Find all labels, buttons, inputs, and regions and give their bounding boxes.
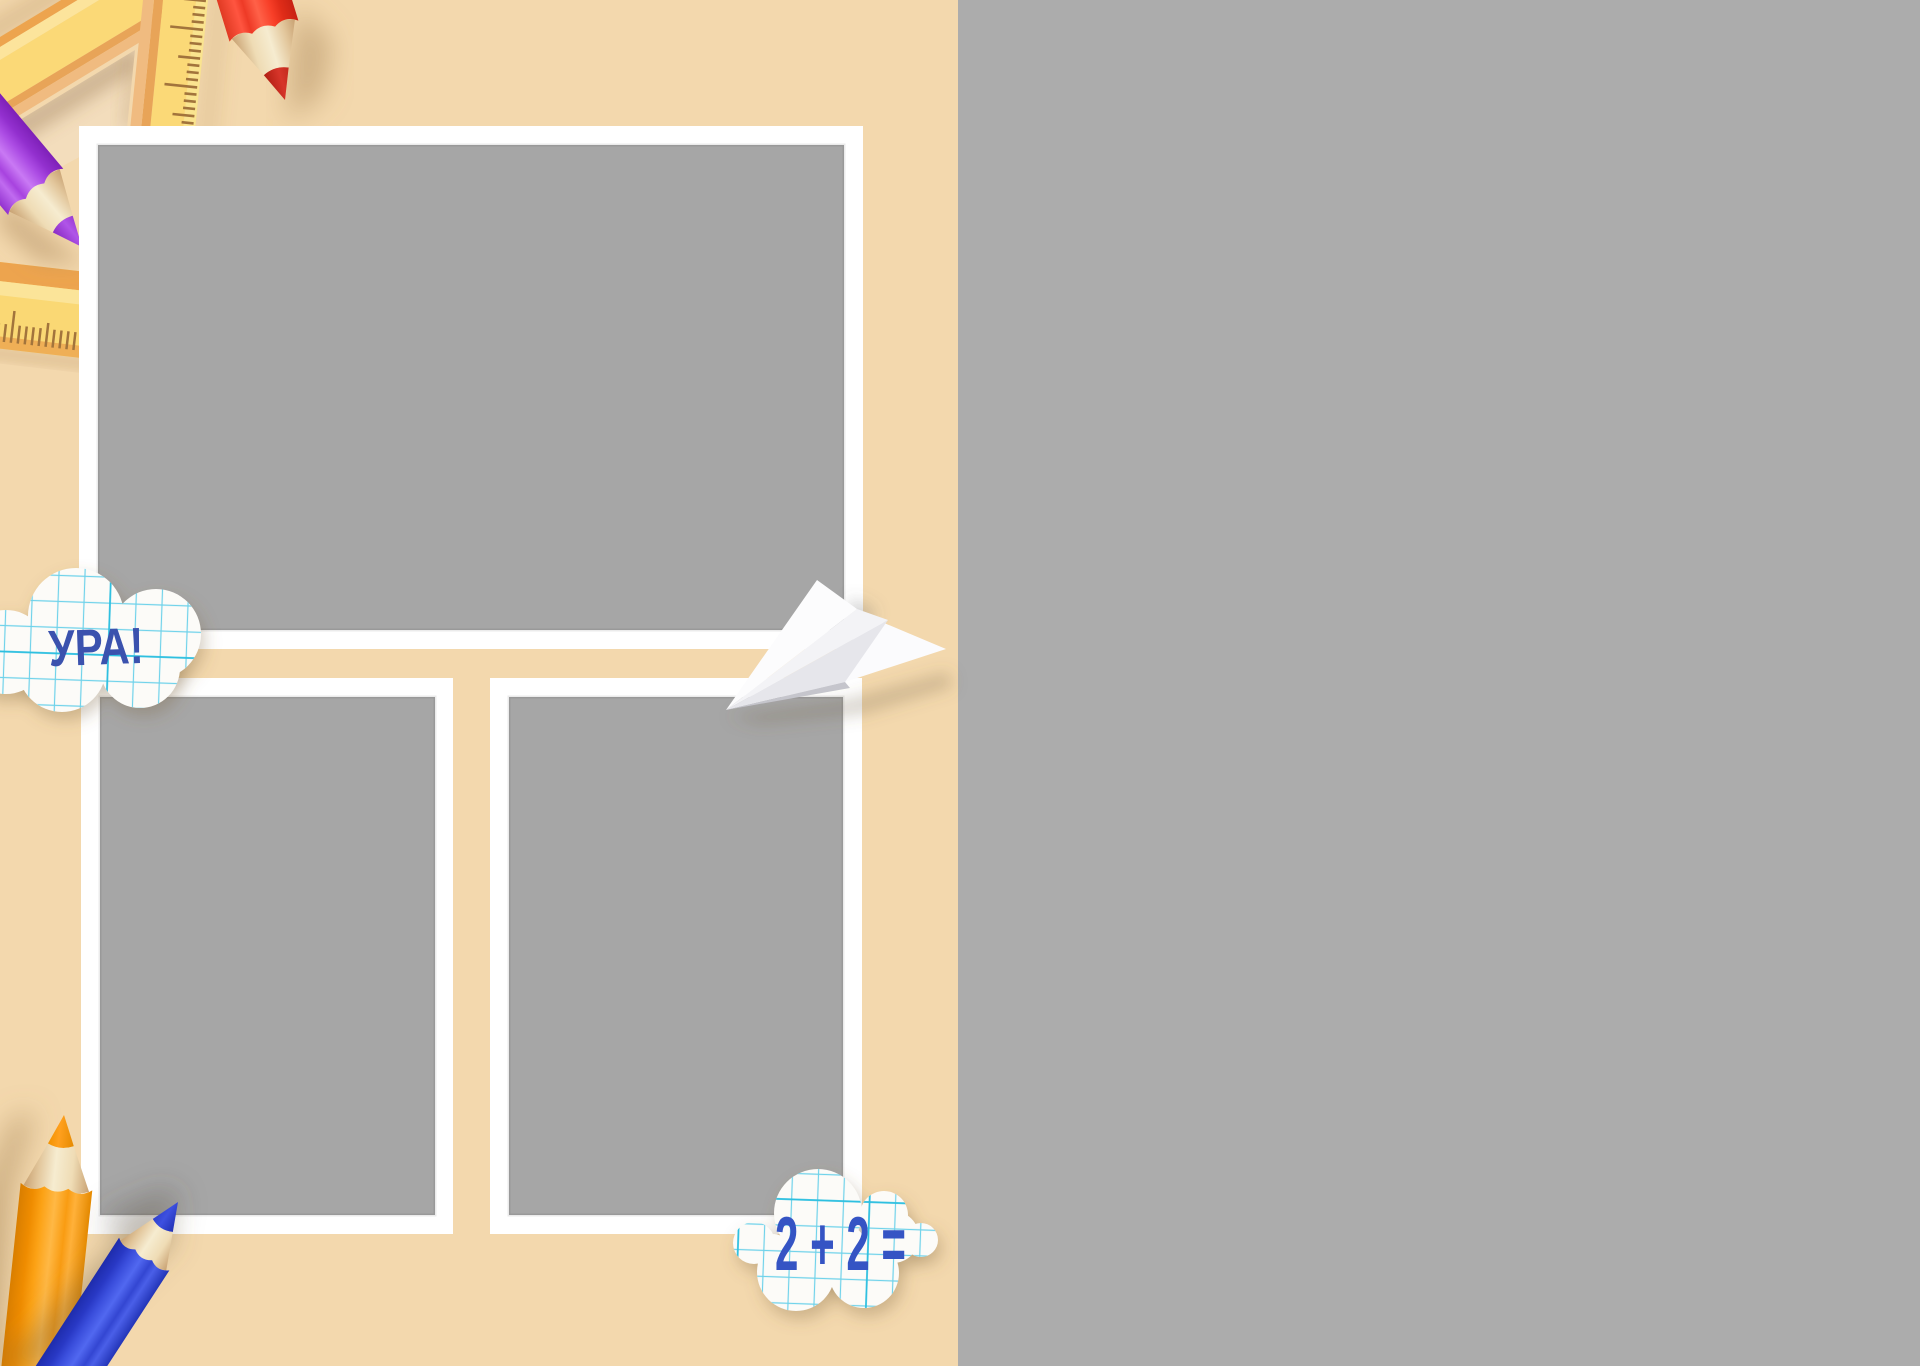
svg-text:2 + 2 =: 2 + 2 = <box>775 1202 906 1287</box>
svg-text:УРА!: УРА! <box>48 617 145 677</box>
